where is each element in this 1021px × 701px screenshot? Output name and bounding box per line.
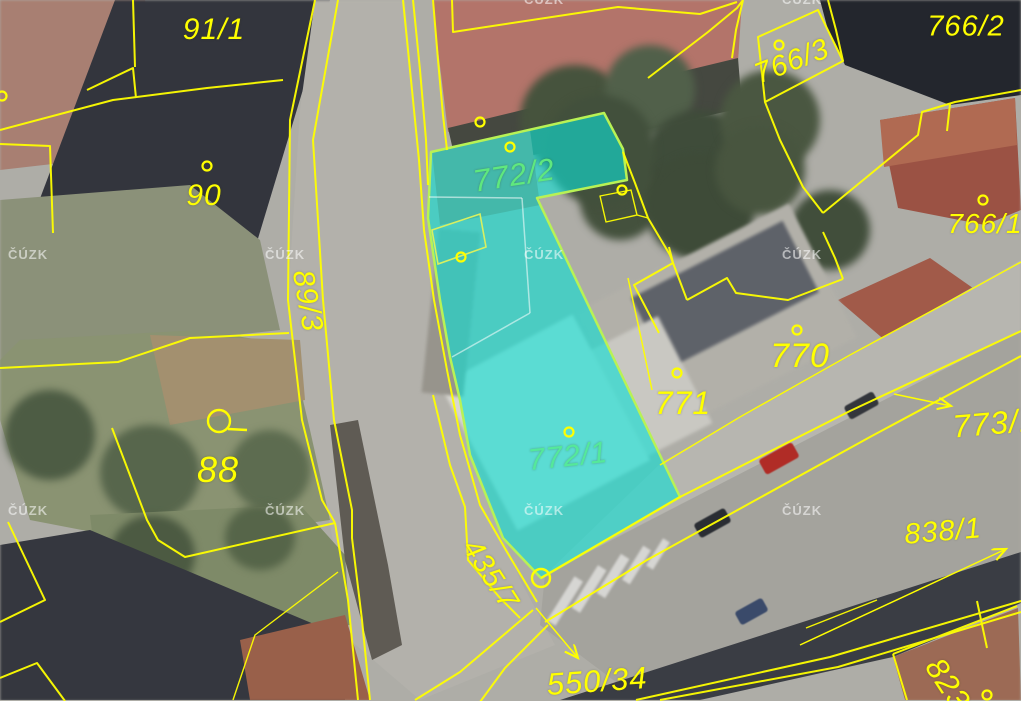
point-marker	[0, 92, 7, 101]
point-marker	[618, 186, 627, 195]
point-marker	[673, 369, 682, 378]
leader-arrow-838/1	[800, 549, 1006, 645]
map-canvas[interactable]: 91/190766/2766/3766/189/3772/2770771772/…	[0, 0, 1021, 701]
cadastral-overlay	[0, 0, 1021, 701]
point-marker	[983, 691, 992, 700]
point-marker	[203, 162, 212, 171]
point-marker	[476, 118, 485, 127]
point-marker	[793, 326, 802, 335]
point-marker	[979, 196, 988, 205]
circle-symbol	[208, 410, 230, 432]
circle-symbol-tail	[228, 429, 247, 430]
leader-arrow-773/1	[894, 394, 951, 406]
point-marker	[775, 41, 784, 50]
